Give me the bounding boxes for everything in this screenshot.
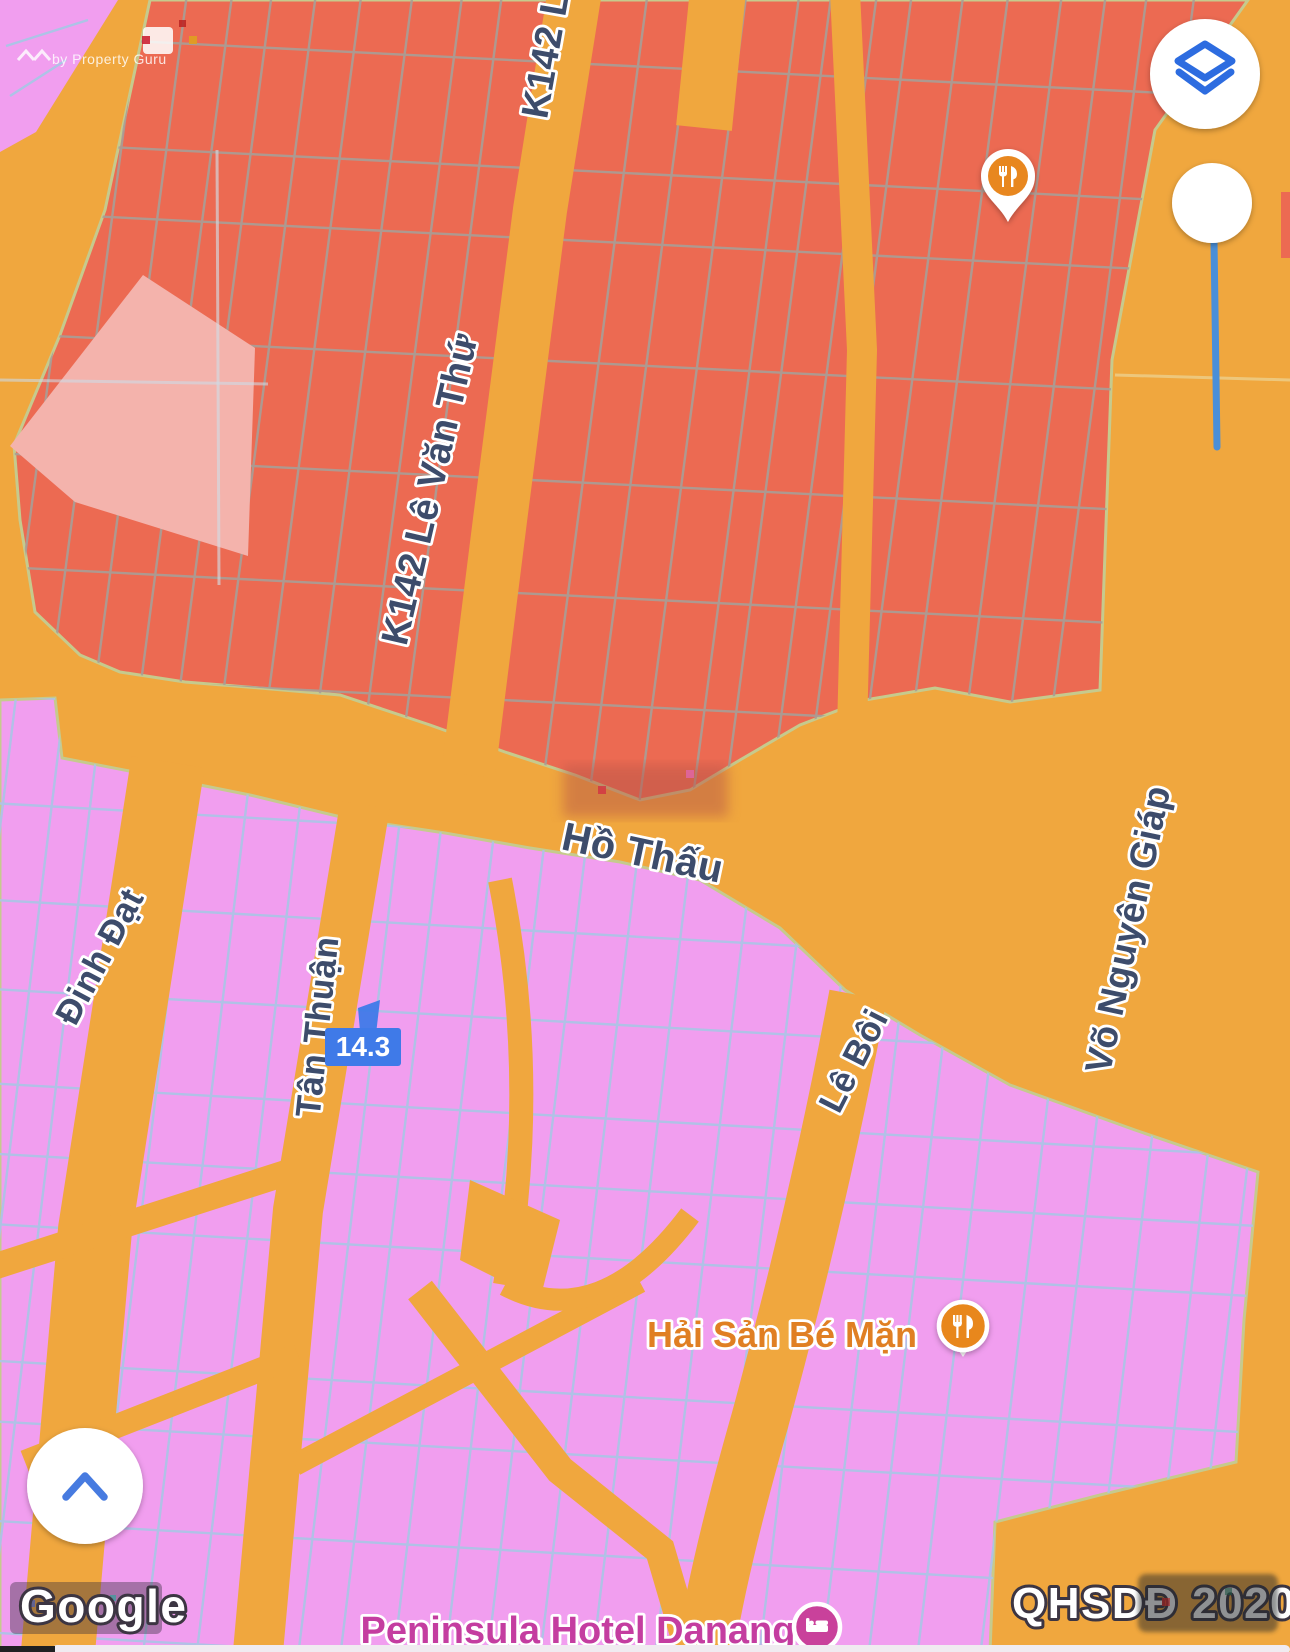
poi-label-hai-san: Hải Sản Bé Mặn [647, 1314, 917, 1355]
red-sliver [1281, 192, 1290, 258]
redacted-area [563, 765, 728, 817]
hotel-pin-peninsula[interactable] [794, 1604, 840, 1650]
bottom-sheet-edge[interactable] [52, 1645, 1290, 1652]
measurement-value: 14.3 [336, 1031, 391, 1062]
overlay-opacity-slider-track[interactable] [1214, 241, 1217, 447]
overlay-tag: QHSDĐ 2020 [1012, 1574, 1290, 1632]
overlay-opacity-slider-thumb[interactable] [1172, 163, 1252, 243]
expand-button[interactable] [27, 1428, 143, 1544]
map-screen: K142 L K142 Lê Văn Thứ Hồ Thấu Đinh Đạt … [0, 0, 1290, 1652]
google-wordmark: Google [20, 1580, 187, 1632]
google-logo: Google [10, 1580, 187, 1634]
layers-button[interactable] [1150, 19, 1260, 129]
watermark-text: by Property Guru [52, 51, 167, 67]
poi-peninsula[interactable]: Peninsula Hotel Danang [361, 1604, 840, 1652]
bottom-corner-artifact [0, 1646, 55, 1652]
map-canvas[interactable]: K142 L K142 Lê Văn Thứ Hồ Thấu Đinh Đạt … [0, 0, 1290, 1652]
